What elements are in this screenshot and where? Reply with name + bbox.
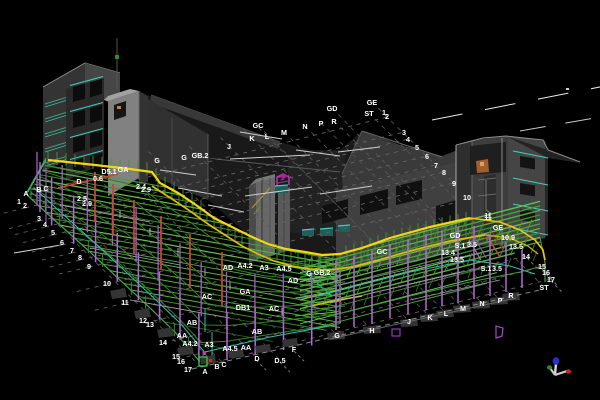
- svg-text:11: 11: [121, 298, 129, 307]
- svg-text:13: 13: [146, 320, 154, 329]
- svg-text:K: K: [249, 134, 255, 143]
- svg-text:J: J: [407, 317, 411, 326]
- svg-text:R: R: [331, 117, 337, 126]
- svg-text:C: C: [221, 360, 226, 369]
- svg-text:D: D: [76, 177, 81, 186]
- svg-text:L: L: [265, 132, 270, 141]
- svg-text:ST: ST: [364, 109, 374, 118]
- svg-text:A: A: [202, 367, 207, 376]
- svg-text:2.9: 2.9: [141, 185, 151, 194]
- svg-text:GE: GE: [493, 223, 504, 232]
- svg-text:G: G: [154, 156, 160, 165]
- svg-text:7: 7: [434, 161, 438, 170]
- svg-text:GC: GC: [253, 121, 264, 130]
- svg-text:G: G: [306, 269, 312, 278]
- svg-text:13.5: 13.5: [509, 242, 523, 251]
- svg-text:M: M: [460, 304, 466, 313]
- svg-text:A4.5: A4.5: [276, 264, 291, 273]
- svg-text:G: G: [181, 153, 187, 162]
- svg-text:17: 17: [184, 365, 192, 374]
- svg-text:6: 6: [60, 238, 64, 247]
- svg-text:L: L: [444, 309, 449, 318]
- svg-text:4: 4: [406, 135, 410, 144]
- svg-text:AD: AD: [288, 276, 298, 285]
- svg-text:R: R: [508, 291, 514, 300]
- svg-text:1: 1: [17, 197, 21, 206]
- svg-text:5: 5: [51, 228, 55, 237]
- svg-text:11: 11: [484, 213, 492, 222]
- svg-text:S.1: S.1: [455, 241, 466, 250]
- svg-text:N: N: [302, 122, 307, 131]
- svg-text:DB1: DB1: [236, 303, 250, 312]
- svg-text:AB: AB: [187, 318, 197, 327]
- svg-text:P: P: [319, 119, 324, 128]
- svg-text:H: H: [369, 326, 374, 335]
- svg-text:17: 17: [547, 275, 555, 284]
- svg-text:AD: AD: [223, 263, 233, 272]
- svg-text:ST: ST: [539, 283, 549, 292]
- svg-text:A3: A3: [204, 340, 213, 349]
- svg-text:AA: AA: [241, 343, 251, 352]
- svg-text:P: P: [498, 296, 503, 305]
- svg-text:GC: GC: [377, 247, 388, 256]
- svg-text:C: C: [43, 184, 48, 193]
- svg-text:D: D: [254, 354, 259, 363]
- svg-text:J: J: [227, 142, 231, 151]
- svg-text:A4.2: A4.2: [237, 261, 252, 270]
- svg-text:A: A: [23, 189, 28, 198]
- svg-text:A4.2: A4.2: [182, 339, 197, 348]
- svg-text:S.1: S.1: [481, 264, 492, 273]
- svg-text:D.5: D.5: [274, 356, 285, 365]
- svg-text:5: 5: [415, 143, 419, 152]
- svg-text:AC: AC: [269, 304, 279, 313]
- svg-text:B: B: [214, 362, 219, 371]
- svg-text:GE: GE: [367, 98, 378, 107]
- svg-text:D5.1: D5.1: [101, 167, 116, 176]
- svg-text:M: M: [281, 128, 287, 137]
- svg-text:A3: A3: [259, 263, 268, 272]
- svg-text:3.5: 3.5: [492, 264, 502, 273]
- svg-text:13.5: 13.5: [450, 255, 464, 264]
- svg-text:2: 2: [23, 201, 27, 210]
- svg-text:AB: AB: [252, 327, 262, 336]
- svg-text:14: 14: [522, 252, 530, 261]
- svg-text:GD: GD: [327, 104, 338, 113]
- svg-text:9: 9: [87, 262, 91, 271]
- svg-text:G: G: [334, 331, 340, 340]
- svg-text:GB.2: GB.2: [314, 268, 331, 277]
- svg-text:GA: GA: [118, 165, 129, 174]
- svg-text:N: N: [479, 299, 484, 308]
- svg-text:GA: GA: [240, 287, 251, 296]
- svg-text:10.9: 10.9: [501, 233, 515, 242]
- svg-text:2.9: 2.9: [82, 199, 92, 208]
- svg-text:3.5: 3.5: [467, 240, 477, 249]
- svg-text:9: 9: [452, 179, 456, 188]
- svg-text:GB.2: GB.2: [192, 151, 209, 160]
- svg-text:3: 3: [37, 214, 41, 223]
- svg-text:F: F: [292, 345, 297, 354]
- svg-text:14: 14: [159, 338, 167, 347]
- svg-text:6: 6: [425, 152, 429, 161]
- svg-text:K: K: [427, 313, 433, 322]
- svg-text:AC: AC: [202, 292, 212, 301]
- svg-text:2: 2: [385, 112, 389, 121]
- svg-text:8: 8: [78, 253, 82, 262]
- svg-text:GD: GD: [450, 231, 461, 240]
- svg-text:4: 4: [43, 220, 47, 229]
- svg-text:8: 8: [442, 168, 446, 177]
- svg-text:10: 10: [103, 279, 111, 288]
- svg-text:7: 7: [70, 246, 74, 255]
- svg-text:B: B: [36, 185, 41, 194]
- svg-text:A4.5: A4.5: [222, 344, 237, 353]
- svg-text:10: 10: [463, 193, 471, 202]
